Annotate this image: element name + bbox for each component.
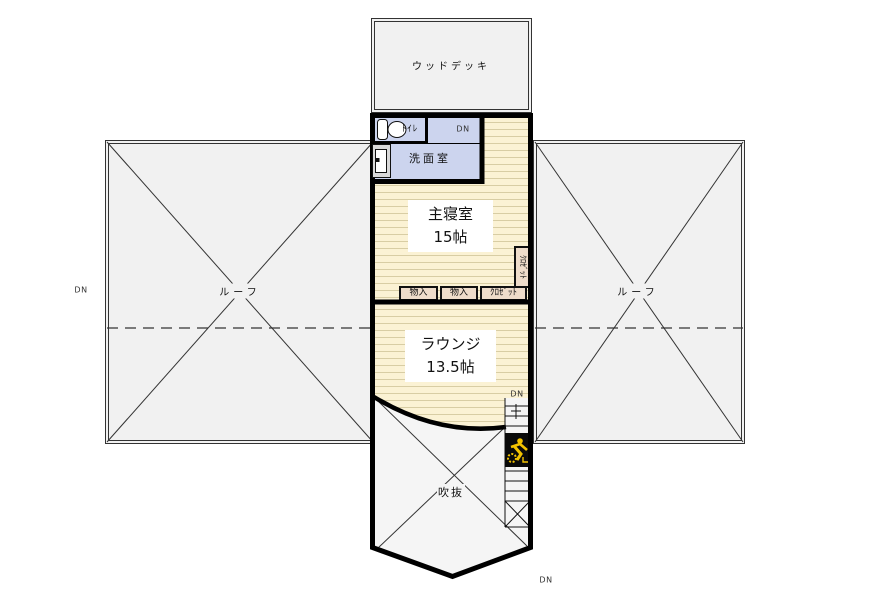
storage-2-label: 物入 [450, 289, 468, 298]
dn-label-washroom: DN [456, 125, 469, 134]
closet-row-box: ｸﾛｾﾞｯﾄ [480, 286, 527, 301]
storage-1-label: 物入 [409, 289, 427, 298]
roof-left-label: ルーフ [217, 284, 262, 299]
wood-deck-label: ウッドデッキ [412, 58, 490, 73]
closet-side-box: ｸﾛｾﾞｯﾄ [514, 246, 531, 288]
roof-right-label: ルーフ [615, 284, 660, 299]
dn-label-lounge-stairs: DN [510, 390, 523, 399]
lounge-name: ラウンジ [420, 333, 480, 356]
floor-plan-canvas: 物入 物入 ｸﾛｾﾞｯﾄ ｸﾛｾﾞｯﾄ [0, 0, 884, 614]
storage-2-box: 物入 [440, 286, 478, 301]
washroom-label: 洗面室 [409, 150, 451, 166]
void-label: 吹抜 [437, 484, 465, 500]
closet-side-label: ｸﾛｾﾞｯﾄ [519, 255, 527, 279]
storage-1-box: 物入 [399, 286, 438, 301]
lounge-label: ラウンジ 13.5帖 [405, 330, 496, 382]
master-bedroom-label: 主寝室 15帖 [408, 200, 493, 252]
closet-row-label: ｸﾛｾﾞｯﾄ [490, 289, 517, 298]
master-bedroom-name: 主寝室 [428, 203, 473, 226]
dn-label-left: DN [74, 286, 87, 295]
lounge-size: 13.5帖 [426, 356, 474, 379]
dn-label-bottom: DN [539, 576, 552, 585]
toilet-label: ﾄｲﾚ [402, 122, 419, 135]
falling-hazard-icon [505, 433, 531, 467]
master-bedroom-size: 15帖 [433, 226, 467, 249]
